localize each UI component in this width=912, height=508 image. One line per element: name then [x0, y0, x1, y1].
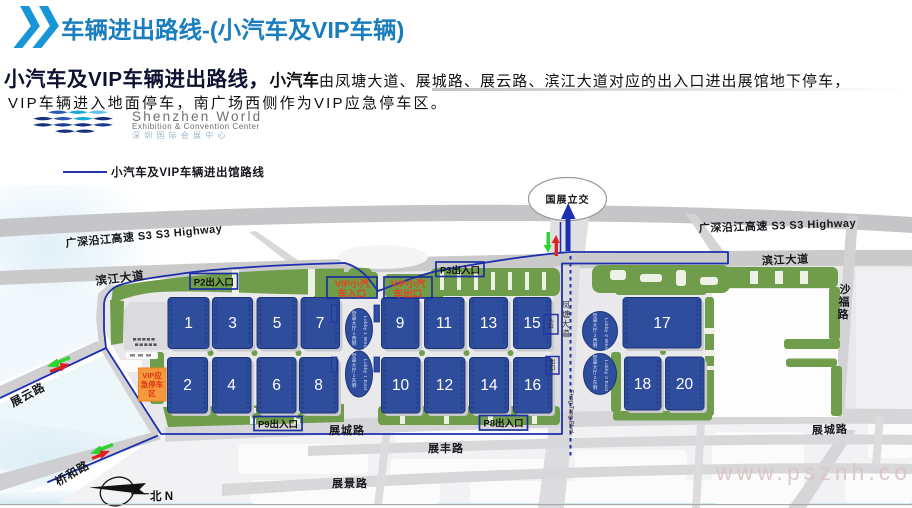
- svg-text:VIP应: VIP应: [142, 370, 162, 380]
- svg-text:6: 6: [272, 377, 281, 394]
- svg-text:车入口: 车入口: [338, 288, 367, 300]
- svg-text:11: 11: [436, 315, 452, 332]
- svg-text:展景路: 展景路: [331, 476, 368, 490]
- svg-text:12: 12: [436, 377, 453, 394]
- svg-text:登录大厅1东侧: 登录大厅1东侧: [352, 352, 357, 389]
- svg-text:Lobby 2 East: Lobby 2 East: [603, 360, 609, 392]
- svg-text:1: 1: [184, 315, 193, 332]
- svg-text:出口: 出口: [550, 358, 556, 372]
- svg-text:登录大厅1西侧: 登录大厅1西侧: [352, 310, 357, 347]
- svg-text:www.psznh.com: www.psznh.com: [715, 459, 912, 485]
- svg-text:入口: 入口: [548, 318, 554, 330]
- svg-text:P8出入口: P8出入口: [483, 418, 523, 430]
- svg-text:17: 17: [653, 315, 670, 332]
- svg-text:车出口: 车出口: [394, 288, 423, 300]
- svg-text:P9出入口: P9出入口: [258, 419, 298, 431]
- svg-text:急停车: 急停车: [141, 379, 164, 389]
- svg-text:展丰路: 展丰路: [427, 441, 464, 455]
- svg-text:P2出入口: P2出入口: [194, 277, 234, 289]
- svg-text:凤塘大道: 凤塘大道: [561, 300, 571, 339]
- svg-text:登录大厅2东侧: 登录大厅2东侧: [593, 354, 598, 391]
- svg-text:Feng Tang Blvd: Feng Tang Blvd: [568, 390, 575, 433]
- svg-text:展城路: 展城路: [811, 422, 848, 437]
- svg-text:14: 14: [480, 377, 498, 394]
- svg-text:Lobby 1 East: Lobby 1 East: [362, 359, 368, 391]
- svg-text:3: 3: [228, 315, 237, 332]
- svg-text:10: 10: [392, 377, 410, 394]
- svg-text:15: 15: [523, 315, 540, 332]
- svg-text:Lobby 2 West: Lobby 2 West: [603, 318, 609, 351]
- svg-text:登录大厅2西侧: 登录大厅2西侧: [593, 312, 598, 349]
- svg-text:20: 20: [676, 376, 694, 393]
- svg-text:2: 2: [183, 377, 192, 394]
- svg-text:国展立交: 国展立交: [546, 193, 590, 206]
- svg-text:5: 5: [273, 315, 282, 332]
- svg-text:7: 7: [316, 315, 325, 332]
- svg-text:8: 8: [314, 377, 323, 394]
- svg-text:北 N: 北 N: [150, 489, 173, 503]
- svg-text:区: 区: [148, 389, 156, 398]
- svg-text:16: 16: [524, 377, 541, 394]
- svg-text:P3出入口: P3出入口: [440, 265, 480, 277]
- svg-text:18: 18: [634, 376, 651, 393]
- svg-text:4: 4: [227, 377, 236, 394]
- svg-text:展城路: 展城路: [328, 423, 365, 437]
- svg-text:Lobby 1 West: Lobby 1 West: [362, 316, 368, 349]
- svg-text:9: 9: [396, 315, 405, 332]
- svg-text:13: 13: [480, 315, 497, 332]
